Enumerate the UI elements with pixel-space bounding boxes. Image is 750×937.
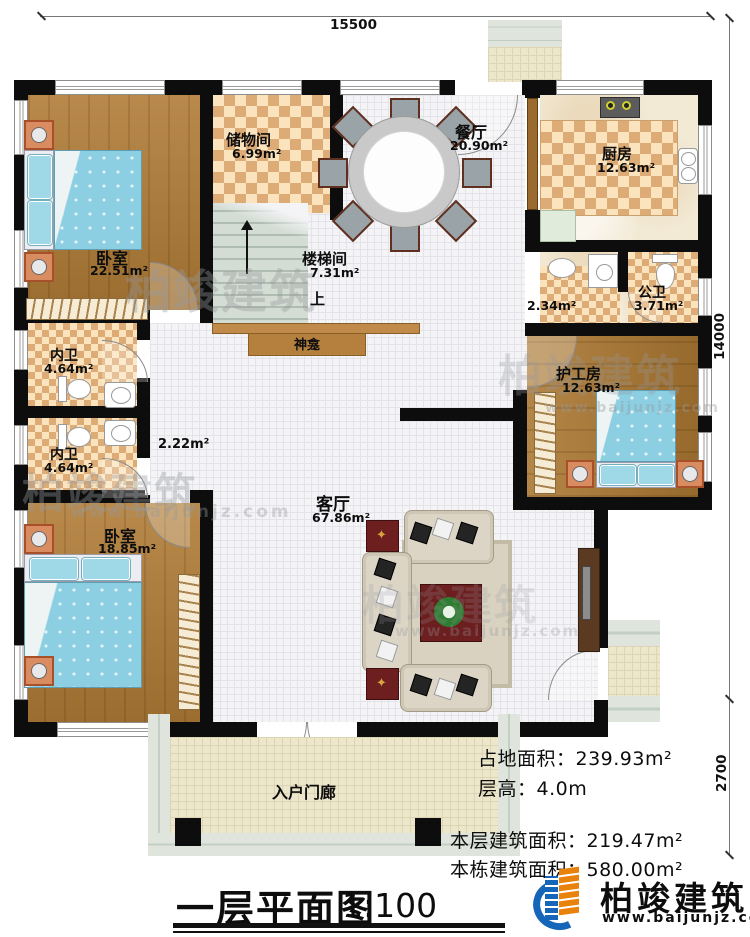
dining-table-top bbox=[363, 131, 445, 213]
window bbox=[340, 80, 440, 95]
shrine-label: 神龛 bbox=[294, 338, 320, 353]
nightstand bbox=[24, 252, 54, 282]
bed-pillow bbox=[28, 201, 52, 245]
toilet-tank bbox=[652, 254, 678, 263]
nightstand bbox=[24, 656, 54, 686]
kitchen-counter bbox=[540, 210, 576, 242]
logo-building-orange-icon bbox=[559, 867, 579, 916]
dim-line-right-main bbox=[729, 18, 730, 700]
bed-pillow bbox=[600, 465, 636, 485]
watermark-url: www.baijunjz.com bbox=[395, 622, 580, 640]
entry-porch-floor bbox=[170, 737, 520, 833]
window bbox=[698, 278, 712, 316]
watermark-url: www.baijunjz.com bbox=[70, 502, 292, 522]
dining-area: 20.90m² bbox=[450, 138, 508, 153]
wall-bath-right bbox=[137, 323, 150, 340]
window bbox=[698, 125, 712, 195]
vestibule-area: 2.34m² bbox=[527, 298, 576, 313]
stair-up-arrowhead bbox=[241, 214, 253, 230]
dining-chair bbox=[462, 158, 492, 188]
toilet-tank bbox=[58, 376, 67, 402]
wall-bedroom2-right bbox=[200, 490, 213, 722]
dim-right-main-label: 14000 bbox=[712, 313, 728, 360]
wall-bath-block-bottom bbox=[525, 323, 712, 336]
watermark-url: www.baijunjz.com bbox=[545, 400, 720, 416]
stove-burner bbox=[606, 101, 615, 110]
stove-burner bbox=[622, 101, 631, 110]
caregiver-area: 12.63m² bbox=[562, 380, 620, 395]
nightstand bbox=[566, 460, 594, 488]
kitchen-door-leaf bbox=[527, 98, 538, 210]
wall-vestibule-divider bbox=[618, 252, 628, 292]
back-porch-steps bbox=[488, 34, 562, 47]
back-porch-floor bbox=[488, 47, 562, 82]
kitchen-sink-basin bbox=[681, 167, 696, 181]
wall-storage-right bbox=[330, 80, 343, 220]
side-porch-floor bbox=[608, 646, 660, 696]
bath1-area: 4.64m² bbox=[44, 361, 93, 376]
wardrobe bbox=[178, 574, 200, 710]
floor-plan-sheet: 15500 14000 2700 神龛 bbox=[0, 0, 750, 937]
porch-pillar bbox=[175, 818, 201, 846]
tv bbox=[582, 566, 591, 620]
window bbox=[55, 80, 165, 95]
bed-pillow bbox=[28, 155, 52, 199]
info-floor-area: 本层建筑面积：219.47m² bbox=[450, 826, 683, 853]
corridor-area: 2.22m² bbox=[158, 437, 209, 452]
window bbox=[556, 80, 644, 95]
side-porch-steps bbox=[608, 696, 660, 722]
bedroom1-area: 22.51m² bbox=[90, 263, 148, 278]
wall-caregiver-left bbox=[513, 390, 527, 497]
dim-top-label: 15500 bbox=[330, 17, 377, 33]
porch-pillar bbox=[415, 818, 441, 846]
title-underline-thick bbox=[173, 923, 505, 928]
wall-right-lower bbox=[594, 700, 608, 722]
bath1-door-swing bbox=[102, 340, 148, 382]
wall-caregiver-bottom bbox=[513, 497, 712, 510]
bath-sink-basin bbox=[111, 387, 131, 404]
washing-machine-drum bbox=[596, 264, 613, 281]
living-area: 67.86m² bbox=[312, 510, 370, 525]
bedroom2-area: 18.85m² bbox=[98, 541, 156, 556]
toilet-bowl bbox=[67, 379, 91, 399]
window bbox=[222, 80, 302, 95]
wall-hall-stub bbox=[400, 408, 527, 421]
watermark-text: 柏竣建筑 bbox=[125, 256, 317, 322]
side-porch-steps bbox=[608, 620, 660, 646]
nightstand bbox=[24, 524, 54, 554]
window bbox=[14, 330, 28, 370]
wall-bath-right bbox=[137, 378, 150, 458]
entry-porch-label: 入户门廊 bbox=[272, 779, 336, 803]
staircase-cut bbox=[213, 203, 308, 263]
title-underline-thin bbox=[173, 931, 505, 933]
entry-porch-band-left bbox=[148, 714, 170, 833]
info-floor-height: 层高：4.0m bbox=[478, 774, 587, 801]
decor-star: ✦ bbox=[376, 529, 387, 542]
nightstand bbox=[676, 460, 704, 488]
wall-kitchen-left bbox=[525, 80, 540, 98]
kitchen-area: 12.63m² bbox=[597, 160, 655, 175]
bath2-area: 4.64m² bbox=[44, 460, 93, 475]
kitchen-sink-basin bbox=[681, 152, 696, 166]
info-land-area: 占地面积：239.93m² bbox=[478, 744, 672, 771]
logo-website: www.baijunjz.com bbox=[602, 910, 750, 926]
dining-chair bbox=[318, 158, 348, 188]
bed-pillow bbox=[30, 558, 78, 580]
vestibule-sink bbox=[548, 258, 576, 278]
storage-area: 6.99m² bbox=[232, 146, 281, 161]
dim-right-porch-label: 2700 bbox=[714, 754, 730, 792]
bed-pillow bbox=[82, 558, 130, 580]
back-porch-steps bbox=[488, 20, 562, 34]
logo-building-blue-icon bbox=[545, 876, 558, 920]
bed-pillow bbox=[638, 465, 674, 485]
sheet-scale: 1:100 bbox=[342, 886, 437, 925]
bed bbox=[54, 150, 142, 250]
public-bath-area: 3.71m² bbox=[634, 298, 683, 313]
wall-bottom bbox=[357, 722, 608, 737]
stair-up-label: 上 bbox=[310, 288, 325, 309]
nightstand bbox=[24, 120, 54, 150]
stairwell-area: 7.31m² bbox=[310, 265, 359, 280]
shrine-box: 神龛 bbox=[248, 333, 366, 356]
window bbox=[14, 425, 28, 465]
logo bbox=[533, 866, 595, 932]
decor-star: ✦ bbox=[376, 677, 387, 690]
bath-sink-basin bbox=[111, 425, 131, 442]
